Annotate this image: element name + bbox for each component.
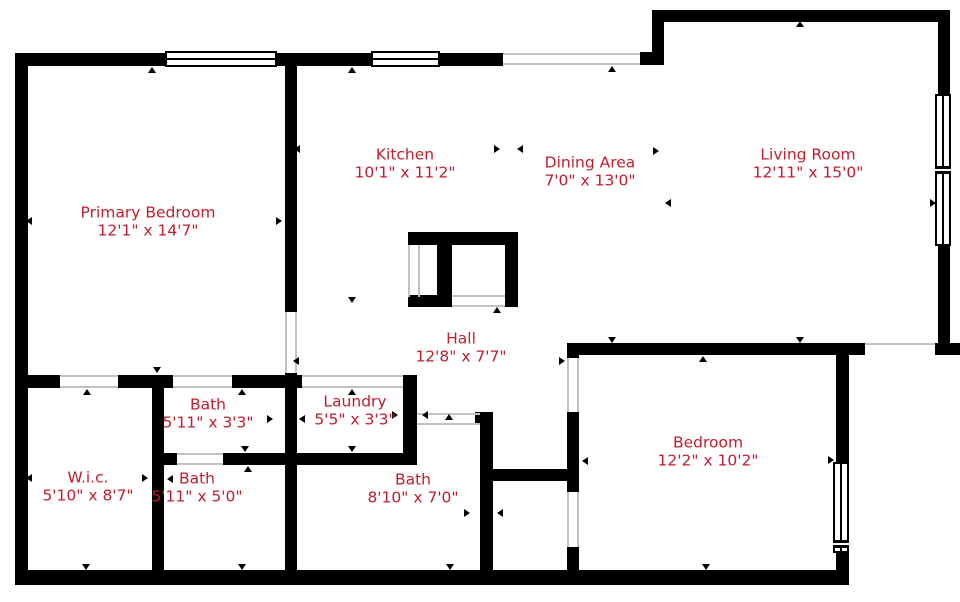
- wall: [567, 343, 579, 358]
- measure-arrow-icon: [238, 389, 246, 395]
- wall: [15, 570, 848, 585]
- door-opening-line: [865, 343, 935, 345]
- door-opening-line: [60, 375, 118, 377]
- door-opening-line: [452, 295, 505, 297]
- door-opening-line: [417, 423, 480, 425]
- room-label-bath-lower: Bath8'10" x 7'0": [367, 472, 458, 507]
- window-pane-line: [167, 58, 275, 60]
- door-opening-line: [302, 386, 403, 388]
- measure-arrow-icon: [559, 357, 565, 365]
- window-pane-line: [373, 58, 438, 60]
- measure-arrow-icon: [493, 307, 501, 313]
- room-label-bath-upper: Bath5'11" x 3'3": [162, 397, 253, 432]
- window-mullion: [833, 540, 849, 548]
- door-opening-line: [577, 358, 579, 412]
- room-label-dining-area: Dining Area7'0" x 13'0": [544, 155, 635, 190]
- wall: [27, 375, 60, 388]
- measure-arrow-icon: [446, 564, 454, 570]
- measure-arrow-icon: [299, 415, 305, 423]
- measure-arrow-icon: [445, 414, 453, 420]
- measure-arrow-icon: [293, 357, 299, 365]
- room-dimensions: 5'5" x 3'3": [314, 411, 395, 429]
- window: [371, 51, 440, 67]
- room-name: Primary Bedroom: [81, 205, 216, 223]
- room-name: Living Room: [753, 147, 864, 165]
- measure-arrow-icon: [244, 466, 252, 472]
- measure-arrow-icon: [582, 457, 588, 465]
- room-dimensions: 12'2" x 10'2": [658, 452, 759, 470]
- wall: [232, 375, 302, 388]
- wall: [505, 232, 518, 307]
- room-dimensions: 8'10" x 7'0": [367, 489, 458, 507]
- room-label-primary-bedroom: Primary Bedroom12'1" x 14'7": [81, 205, 216, 240]
- room-dimensions: 7'0" x 13'0": [544, 172, 635, 190]
- room-label-living-room: Living Room12'11" x 15'0": [753, 147, 864, 182]
- wall: [15, 53, 28, 585]
- floor-plan: Primary Bedroom12'1" x 14'7"Kitchen10'1"…: [0, 0, 960, 602]
- measure-arrow-icon: [276, 217, 282, 225]
- measure-arrow-icon: [142, 474, 148, 482]
- door-opening-line: [567, 358, 569, 412]
- measure-arrow-icon: [796, 337, 804, 343]
- measure-arrow-icon: [241, 446, 249, 452]
- measure-arrow-icon: [796, 21, 804, 27]
- window: [833, 462, 849, 553]
- room-dimensions: 10'1" x 11'2": [355, 164, 456, 182]
- room-name: Dining Area: [544, 155, 635, 173]
- measure-arrow-icon: [348, 446, 356, 452]
- wall: [118, 375, 173, 388]
- door-opening-line: [408, 245, 410, 297]
- room-name: Bedroom: [658, 435, 759, 453]
- room-dimensions: 12'11" x 15'0": [753, 164, 864, 182]
- measure-arrow-icon: [294, 145, 300, 153]
- wall: [567, 547, 579, 585]
- measure-arrow-icon: [702, 564, 710, 570]
- door-opening-line: [577, 492, 579, 547]
- wall: [836, 552, 849, 585]
- wall: [567, 343, 865, 355]
- measure-arrow-icon: [930, 199, 936, 207]
- room-label-bedroom: Bedroom12'2" x 10'2": [658, 435, 759, 470]
- window-mullion: [935, 166, 951, 174]
- measure-arrow-icon: [148, 67, 156, 73]
- door-opening-line: [177, 453, 223, 455]
- wall: [408, 295, 452, 307]
- measure-arrow-icon: [464, 509, 470, 517]
- door-opening-line: [173, 375, 232, 377]
- wall: [935, 343, 960, 355]
- door-opening-line: [177, 463, 223, 465]
- measure-arrow-icon: [238, 564, 246, 570]
- measure-arrow-icon: [82, 564, 90, 570]
- wall: [403, 377, 417, 465]
- room-name: Bath: [151, 471, 242, 489]
- measure-arrow-icon: [494, 145, 500, 153]
- wall: [567, 412, 579, 492]
- room-name: Bath: [367, 472, 458, 490]
- door-opening-line: [418, 245, 420, 297]
- door-opening-line: [60, 386, 118, 388]
- measure-arrow-icon: [26, 474, 32, 482]
- room-dimensions: 5'11" x 3'3": [162, 414, 253, 432]
- wall: [938, 245, 950, 355]
- room-label-kitchen: Kitchen10'1" x 11'2": [355, 147, 456, 182]
- measure-arrow-icon: [153, 367, 161, 373]
- measure-arrow-icon: [422, 411, 428, 419]
- measure-arrow-icon: [83, 389, 91, 395]
- wall: [223, 453, 297, 465]
- room-dimensions: 5'11" x 5'0": [151, 488, 242, 506]
- room-dimensions: 12'1" x 14'7": [81, 222, 216, 240]
- wall: [152, 453, 177, 465]
- measure-arrow-icon: [517, 145, 523, 153]
- door-opening-line: [503, 53, 640, 55]
- measure-arrow-icon: [608, 66, 616, 72]
- wall: [493, 469, 567, 481]
- measure-arrow-icon: [608, 337, 616, 343]
- measure-arrow-icon: [699, 356, 707, 362]
- wall: [938, 10, 950, 95]
- measure-arrow-icon: [665, 199, 671, 207]
- wall: [480, 412, 493, 570]
- room-dimensions: 5'10" x 8'7": [42, 487, 133, 505]
- room-name: Kitchen: [355, 147, 456, 165]
- window-pane-line: [840, 464, 842, 551]
- room-name: Bath: [162, 397, 253, 415]
- room-name: Hall: [415, 331, 506, 349]
- room-name: W.i.c.: [42, 470, 133, 488]
- room-label-bath-middle: Bath5'11" x 5'0": [151, 471, 242, 506]
- measure-arrow-icon: [348, 67, 356, 73]
- window: [165, 51, 277, 67]
- measure-arrow-icon: [348, 297, 356, 303]
- measure-arrow-icon: [653, 147, 659, 155]
- wall: [285, 453, 417, 465]
- measure-arrow-icon: [26, 217, 32, 225]
- door-opening-line: [285, 312, 287, 373]
- wall: [836, 355, 849, 463]
- measure-arrow-icon: [497, 509, 503, 517]
- measure-arrow-icon: [828, 456, 834, 464]
- door-opening-line: [567, 492, 569, 547]
- measure-arrow-icon: [267, 415, 273, 423]
- wall: [285, 53, 297, 312]
- wall: [285, 373, 297, 570]
- room-label-wic: W.i.c.5'10" x 8'7": [42, 470, 133, 505]
- room-name: Laundry: [314, 394, 395, 412]
- room-label-hall: Hall12'8" x 7'7": [415, 331, 506, 366]
- door-opening-line: [173, 386, 232, 388]
- wall: [408, 232, 518, 245]
- room-dimensions: 12'8" x 7'7": [415, 348, 506, 366]
- window: [935, 94, 951, 246]
- door-opening-line: [302, 375, 403, 377]
- room-label-laundry: Laundry5'5" x 3'3": [314, 394, 395, 429]
- door-opening-line: [503, 63, 640, 65]
